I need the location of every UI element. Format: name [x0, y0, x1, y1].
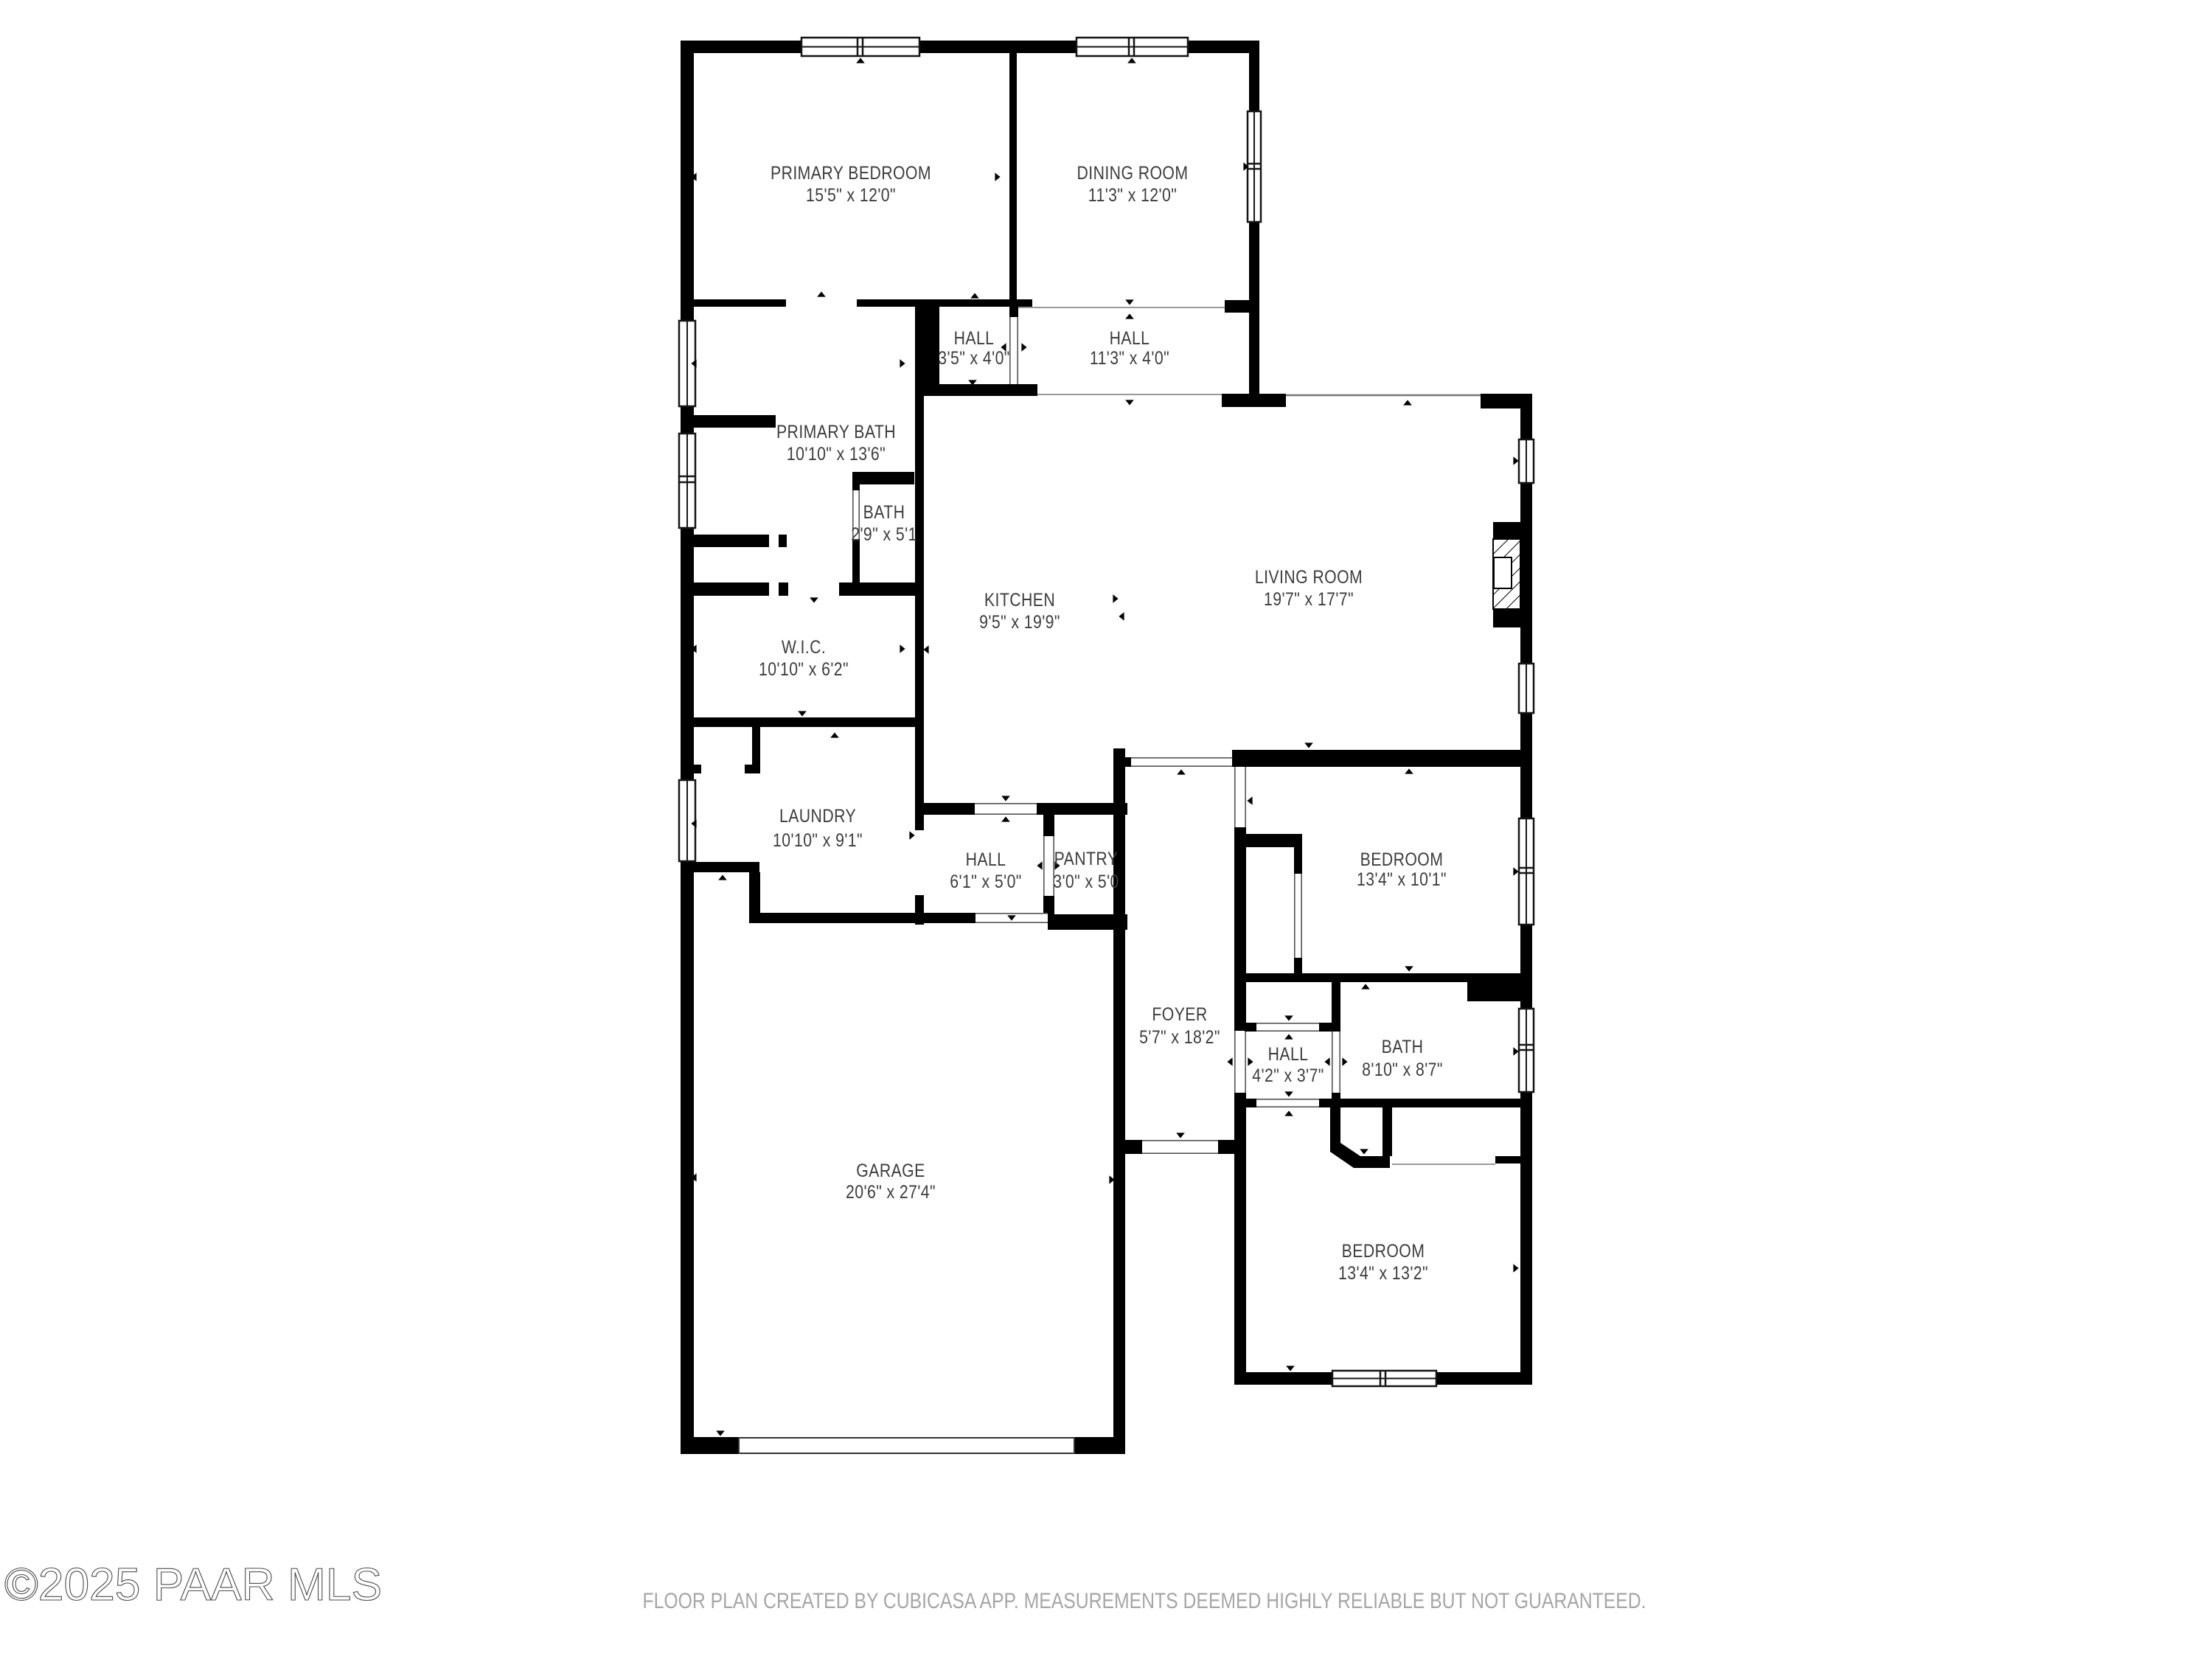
svg-text:BEDROOM: BEDROOM	[1360, 849, 1444, 869]
svg-text:PRIMARY BEDROOM: PRIMARY BEDROOM	[771, 162, 931, 183]
svg-text:LAUNDRY: LAUNDRY	[779, 805, 856, 826]
svg-text:15'5" x 12'0": 15'5" x 12'0"	[806, 184, 896, 205]
svg-text:13'4" x 10'1": 13'4" x 10'1"	[1357, 869, 1447, 889]
svg-text:©2025 PAAR MLS: ©2025 PAAR MLS	[4, 1559, 382, 1610]
svg-text:HALL: HALL	[1268, 1043, 1309, 1064]
svg-text:6'1" x 5'0": 6'1" x 5'0"	[950, 871, 1022, 891]
svg-text:11'3" x 4'0": 11'3" x 4'0"	[1090, 347, 1169, 368]
svg-text:9'5" x 19'9": 9'5" x 19'9"	[979, 611, 1060, 632]
svg-text:FOYER: FOYER	[1152, 1004, 1207, 1024]
svg-text:8'10" x 8'7": 8'10" x 8'7"	[1362, 1059, 1443, 1079]
svg-text:W.I.C.: W.I.C.	[782, 636, 826, 657]
svg-text:FLOOR PLAN CREATED BY CUBICASA: FLOOR PLAN CREATED BY CUBICASA APP. MEAS…	[643, 1589, 1646, 1613]
svg-text:13'4" x 13'2": 13'4" x 13'2"	[1338, 1262, 1428, 1283]
svg-text:2'9" x 5'1: 2'9" x 5'1	[851, 524, 917, 544]
svg-text:DINING ROOM: DINING ROOM	[1077, 162, 1189, 183]
svg-text:GARAGE: GARAGE	[856, 1160, 925, 1180]
svg-text:11'3" x 12'0": 11'3" x 12'0"	[1088, 184, 1177, 205]
svg-text:PANTRY: PANTRY	[1054, 848, 1119, 869]
svg-text:LIVING ROOM: LIVING ROOM	[1255, 566, 1363, 587]
svg-text:BATH: BATH	[863, 501, 905, 522]
svg-text:HALL: HALL	[966, 849, 1006, 869]
svg-text:KITCHEN: KITCHEN	[984, 589, 1055, 610]
svg-text:HALL: HALL	[1110, 327, 1150, 348]
svg-text:BEDROOM: BEDROOM	[1342, 1240, 1425, 1261]
svg-text:20'6" x 27'4": 20'6" x 27'4"	[846, 1181, 936, 1202]
svg-text:3'0" x 5'0: 3'0" x 5'0	[1053, 871, 1119, 891]
svg-text:10'10" x 6'2": 10'10" x 6'2"	[759, 658, 849, 679]
svg-text:10'10" x 9'1": 10'10" x 9'1"	[773, 829, 863, 850]
svg-text:PRIMARY BATH: PRIMARY BATH	[776, 421, 896, 442]
svg-text:BATH: BATH	[1382, 1036, 1424, 1057]
svg-text:3'5" x 4'0": 3'5" x 4'0"	[938, 347, 1010, 368]
svg-text:19'7" x 17'7": 19'7" x 17'7"	[1264, 588, 1354, 609]
svg-text:10'10" x 13'6": 10'10" x 13'6"	[787, 443, 886, 464]
svg-text:4'2" x 3'7": 4'2" x 3'7"	[1252, 1065, 1324, 1085]
svg-text:5'7" x 18'2": 5'7" x 18'2"	[1139, 1026, 1220, 1047]
svg-text:HALL: HALL	[954, 327, 995, 348]
